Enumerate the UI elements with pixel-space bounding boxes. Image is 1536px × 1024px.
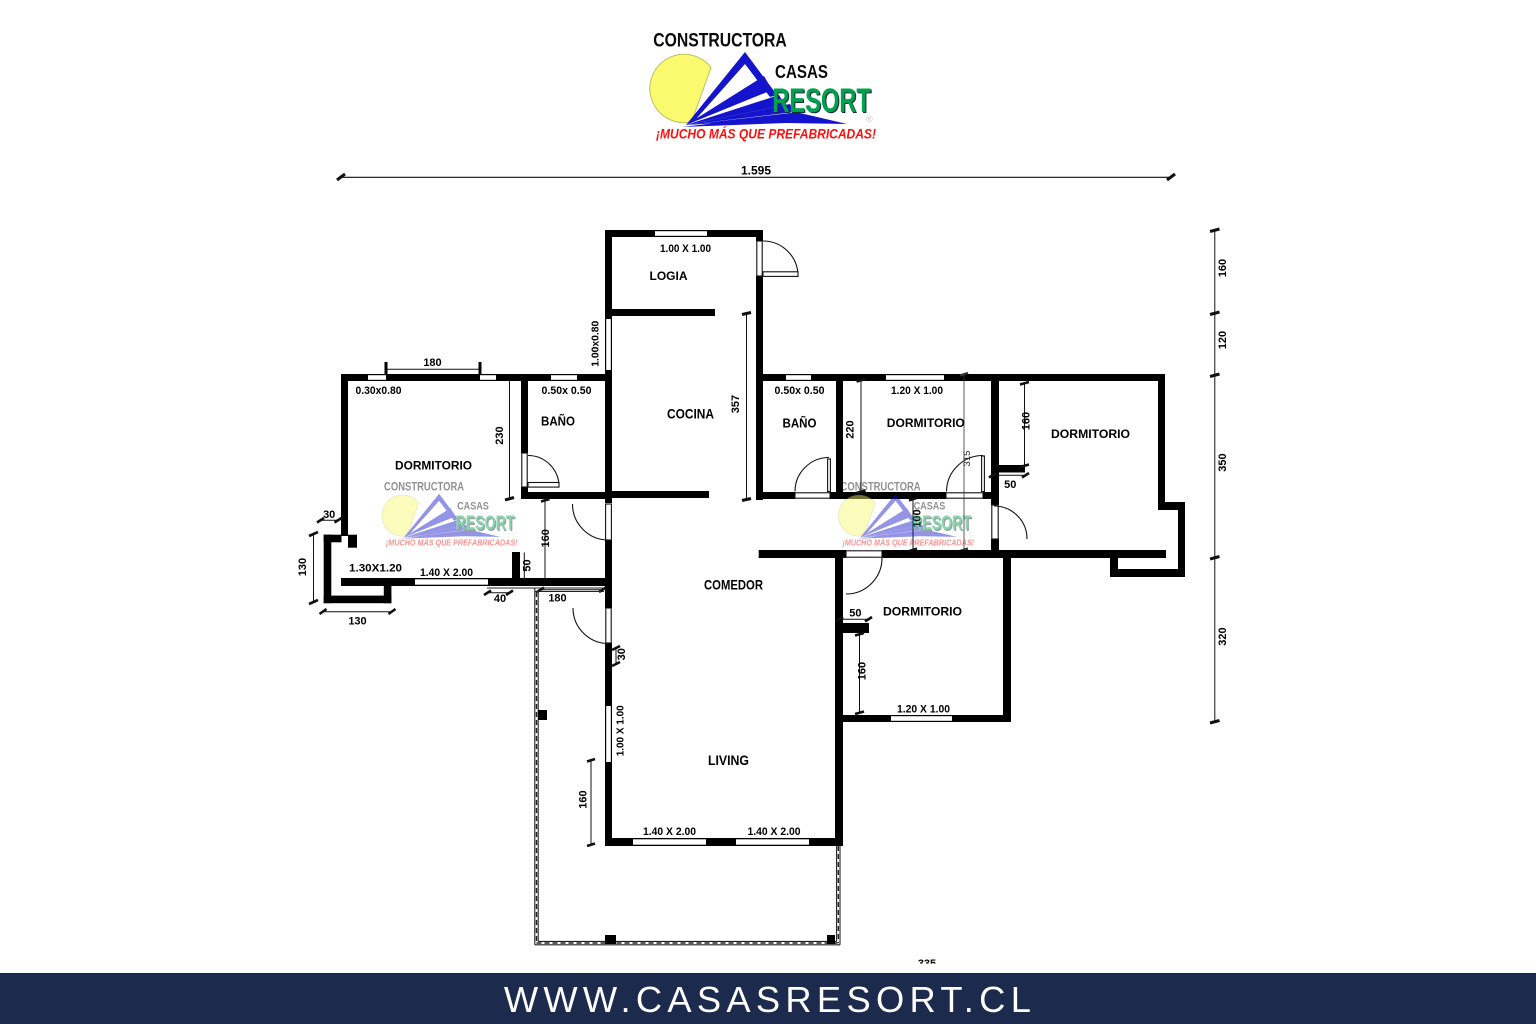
svg-text:30: 30 [616, 648, 628, 660]
svg-text:1.20 X 1.00: 1.20 X 1.00 [891, 385, 943, 397]
svg-text:COMEDOR: COMEDOR [704, 577, 763, 593]
svg-text:0.50x 0.50: 0.50x 0.50 [775, 385, 825, 397]
svg-text:DORMITORIO: DORMITORIO [395, 459, 472, 473]
svg-text:LOGIA: LOGIA [650, 269, 688, 283]
svg-text:BAÑO: BAÑO [541, 414, 575, 429]
svg-text:160: 160 [1021, 412, 1033, 430]
svg-text:320: 320 [1217, 627, 1229, 645]
svg-text:1.30X1.20: 1.30X1.20 [349, 563, 402, 575]
svg-text:160: 160 [540, 529, 552, 547]
svg-text:160: 160 [578, 790, 590, 808]
svg-text:50: 50 [1004, 479, 1016, 491]
svg-text:130: 130 [348, 615, 366, 627]
svg-text:DORMITORIO: DORMITORIO [883, 605, 962, 619]
svg-text:1.00x0.80: 1.00x0.80 [590, 321, 602, 367]
svg-text:50: 50 [849, 608, 861, 620]
svg-text:160: 160 [1217, 259, 1229, 277]
svg-text:120: 120 [1217, 331, 1229, 349]
svg-text:1.00 X 1.00: 1.00 X 1.00 [615, 705, 627, 756]
svg-text:1.595: 1.595 [741, 164, 771, 178]
svg-text:315: 315 [962, 451, 973, 467]
svg-text:1.00 X 1.00: 1.00 X 1.00 [660, 243, 711, 255]
svg-text:COCINA: COCINA [667, 407, 714, 422]
svg-text:DORMITORIO: DORMITORIO [887, 416, 965, 430]
svg-text:220: 220 [845, 420, 857, 438]
svg-text:357: 357 [730, 395, 742, 413]
svg-text:0.30x0.80: 0.30x0.80 [356, 385, 402, 397]
svg-text:1.40 X 2.00: 1.40 X 2.00 [420, 567, 473, 579]
svg-text:350: 350 [1217, 453, 1229, 471]
svg-text:1.40 X 2.00: 1.40 X 2.00 [748, 826, 801, 838]
svg-text:1.40 X 2.00: 1.40 X 2.00 [643, 826, 696, 838]
svg-text:40: 40 [494, 593, 506, 605]
svg-text:LIVING: LIVING [708, 752, 749, 768]
svg-text:180: 180 [423, 357, 441, 369]
svg-text:50: 50 [522, 559, 534, 571]
svg-text:DORMITORIO: DORMITORIO [1051, 427, 1130, 441]
svg-text:BAÑO: BAÑO [783, 416, 817, 431]
svg-text:WWW.CASASRESORT.CL: WWW.CASASRESORT.CL [504, 979, 1036, 1020]
svg-text:30: 30 [323, 509, 335, 521]
svg-text:230: 230 [494, 426, 506, 444]
svg-text:1.20 X 1.00: 1.20 X 1.00 [897, 704, 950, 716]
svg-text:180: 180 [548, 593, 566, 605]
svg-text:0.50x 0.50: 0.50x 0.50 [542, 385, 592, 397]
svg-text:160: 160 [857, 662, 869, 680]
svg-text:130: 130 [297, 558, 309, 576]
